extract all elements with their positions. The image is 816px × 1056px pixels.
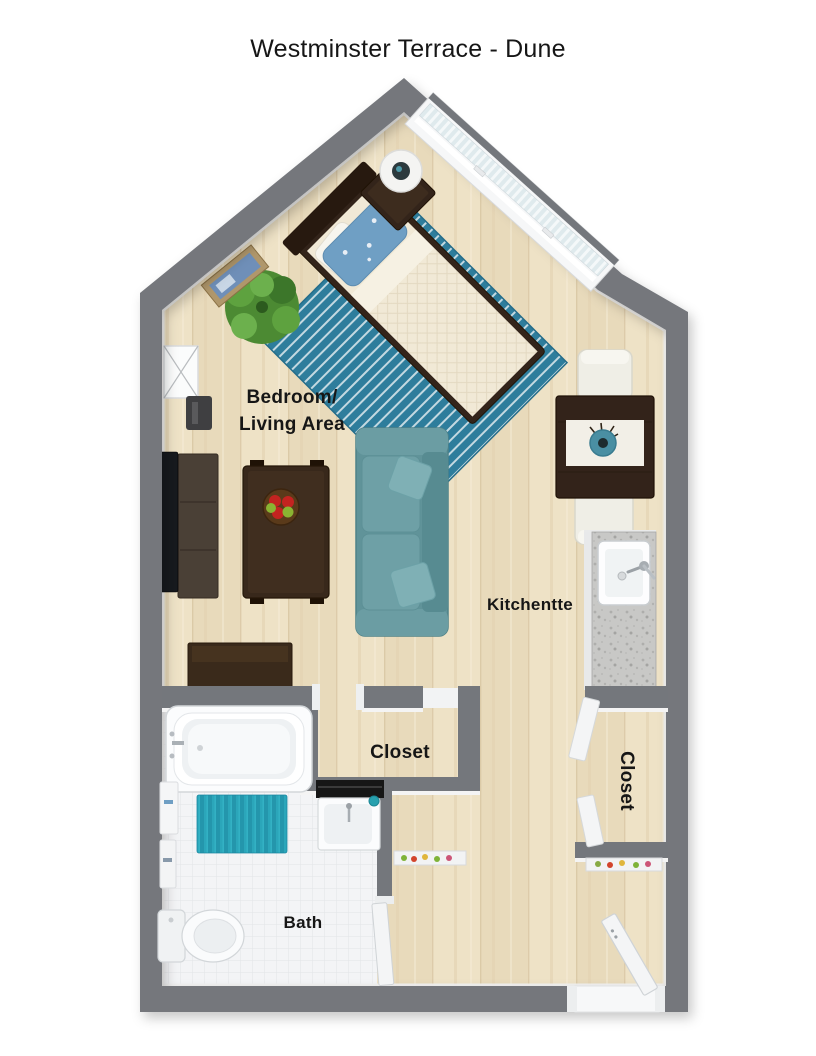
towel-dispenser-upper bbox=[160, 782, 178, 834]
coffee-table bbox=[243, 460, 329, 604]
room-label-bedroom-line1: Bedroom/ bbox=[246, 387, 337, 408]
floor-lamp bbox=[186, 396, 212, 430]
shoe-shelf-right bbox=[586, 858, 662, 871]
doorway-jamb bbox=[312, 684, 320, 710]
vanity-sink bbox=[316, 780, 384, 850]
dining-table bbox=[556, 396, 654, 498]
room-label-bedroom-line2: Living Area bbox=[239, 414, 345, 435]
floor-plan: Bedroom/ Living Area Kitchentte Closet C… bbox=[140, 78, 688, 1012]
standing-mirror bbox=[164, 346, 198, 398]
sofa-armrest-top bbox=[356, 428, 448, 455]
room-label-closet-middle: Closet bbox=[370, 742, 430, 763]
sofa-armrest-bottom bbox=[356, 609, 448, 636]
dresser bbox=[188, 643, 292, 689]
plan-title: Westminster Terrace - Dune bbox=[250, 35, 566, 63]
shoe-shelf-left bbox=[394, 851, 466, 865]
kitchen-counter bbox=[584, 530, 656, 690]
floor-plan-page: Westminster Terrace - Dune bbox=[0, 0, 816, 1056]
tv-stand bbox=[178, 454, 218, 598]
toilet bbox=[158, 910, 244, 962]
doorway-jamb bbox=[356, 684, 364, 710]
bath-mat bbox=[197, 795, 287, 853]
room-label-bath: Bath bbox=[284, 913, 323, 932]
kitchen-sink bbox=[598, 541, 654, 605]
dining-chair-top bbox=[578, 350, 632, 400]
table-lamp bbox=[380, 150, 422, 192]
towel-dispenser-lower bbox=[160, 840, 176, 888]
sofa bbox=[356, 428, 448, 636]
room-label-kitchenette: Kitchentte bbox=[487, 595, 573, 614]
bathtub bbox=[166, 706, 312, 792]
floor-plan-svg: Westminster Terrace - Dune bbox=[0, 0, 816, 1056]
room-label-closet-right: Closet bbox=[616, 751, 637, 811]
fruit-bowl bbox=[263, 489, 299, 525]
doorway-jamb bbox=[423, 688, 458, 708]
vanity-accessory bbox=[369, 796, 379, 806]
